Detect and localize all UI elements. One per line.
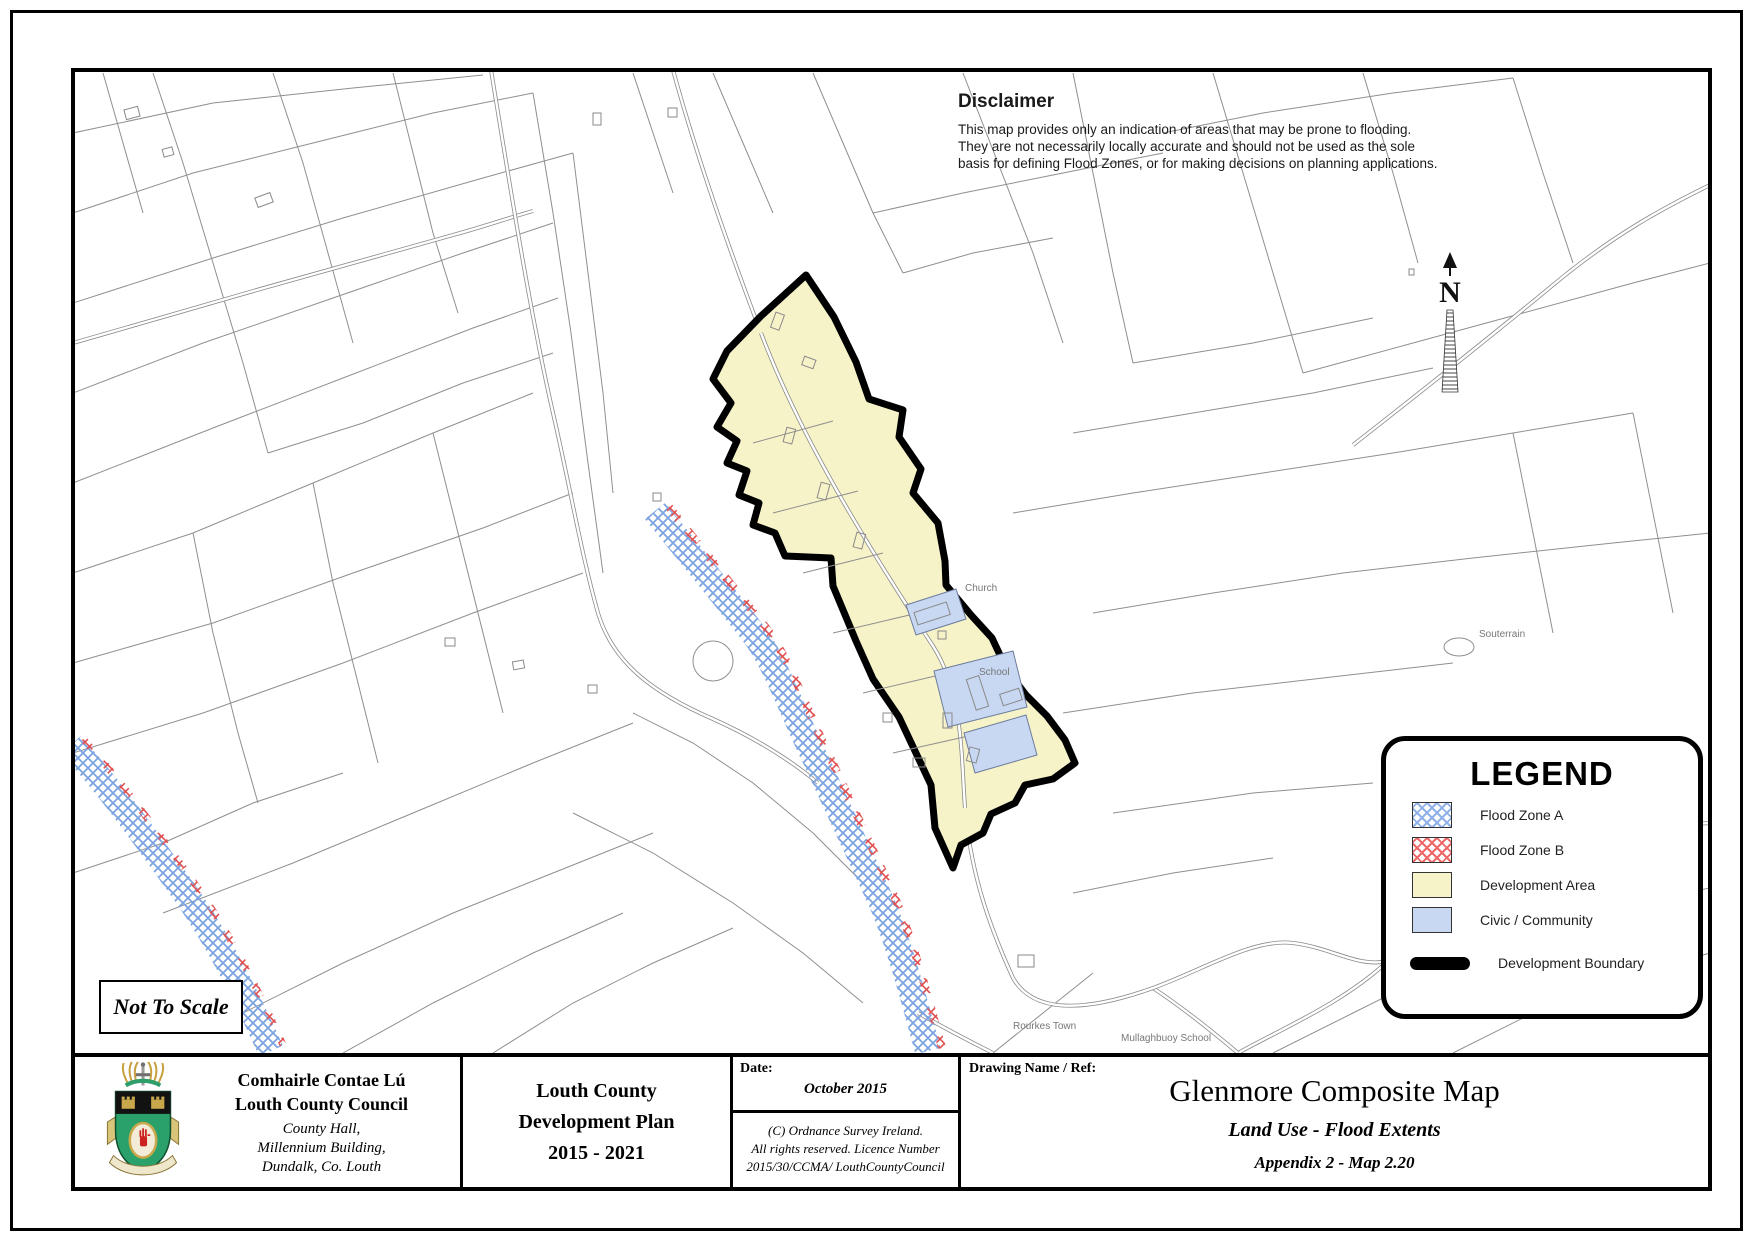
legend-item-label: Flood Zone A — [1480, 807, 1563, 823]
council-name-irish: Comhairle Contae Lú — [189, 1068, 454, 1092]
legend-item-label: Civic / Community — [1480, 912, 1593, 928]
council-cell: Comhairle Contae Lú Louth County Council… — [75, 1057, 460, 1187]
os-copyright-line: All rights reserved. Licence Number — [733, 1140, 958, 1158]
drawing-subtitle: Land Use - Flood Extents — [961, 1119, 1708, 1142]
map-area: Church School Souterrain Rourkes Town Mu… — [75, 72, 1708, 1053]
date-value: October 2015 — [733, 1081, 958, 1098]
souterrain-label: Souterrain — [1479, 629, 1525, 640]
mullaghbuoy-school-label: Mullaghbuoy School — [1121, 1033, 1211, 1044]
development-plan-cell: Louth County Development Plan 2015 - 202… — [460, 1057, 730, 1187]
north-arrowhead — [1443, 252, 1457, 268]
flood-zone-a-swatch — [1412, 802, 1452, 828]
plan-line: 2015 - 2021 — [518, 1138, 674, 1169]
title-block: Comhairle Contae Lú Louth County Council… — [75, 1053, 1708, 1187]
council-address-line: County Hall, — [189, 1120, 454, 1139]
church-label: Church — [965, 583, 997, 594]
os-copyright-line: 2015/30/CCMA/ LouthCountyCouncil — [733, 1158, 958, 1176]
drawing-name-cell: Drawing Name / Ref: Glenmore Composite M… — [958, 1057, 1708, 1187]
flood-zone-b-swatch — [1412, 837, 1452, 863]
legend-item-civic-community: Civic / Community — [1412, 907, 1698, 933]
civic-community-swatch — [1412, 907, 1452, 933]
map-frame: Church School Souterrain Rourkes Town Mu… — [71, 68, 1712, 1191]
disclaimer-line: They are not necessarily locally accurat… — [958, 138, 1558, 155]
legend-item-label: Development Boundary — [1498, 955, 1644, 971]
louth-county-council-crest — [97, 1061, 189, 1183]
development-boundary — [713, 275, 1075, 868]
legend-item-label: Flood Zone B — [1480, 842, 1564, 858]
drawing-appendix: Appendix 2 - Map 2.20 — [961, 1153, 1708, 1173]
souterrain-outline — [1444, 638, 1474, 656]
disclaimer-line: This map provides only an indication of … — [958, 121, 1558, 138]
council-address-line: Dundalk, Co. Louth — [189, 1158, 454, 1177]
disclaimer-block: Disclaimer This map provides only an ind… — [958, 91, 1558, 172]
legend-item-label: Development Area — [1480, 877, 1595, 893]
date-cell: Date: October 2015 (C) Ordnance Survey I… — [730, 1057, 958, 1187]
council-address-line: Millennium Building, — [189, 1139, 454, 1158]
council-name-english: Louth County Council — [189, 1092, 454, 1116]
north-spike — [1442, 310, 1458, 392]
drawing-title: Glenmore Composite Map — [961, 1073, 1708, 1109]
not-to-scale-label: Not To Scale — [113, 994, 228, 1020]
legend-item-development-boundary: Development Boundary — [1412, 955, 1698, 971]
north-arrow: N — [1427, 252, 1473, 412]
legend-item-flood-zone-b: Flood Zone B — [1412, 837, 1698, 863]
school-label: School — [979, 667, 1010, 678]
os-copyright-line: (C) Ordnance Survey Ireland. — [733, 1122, 958, 1140]
os-copyright: (C) Ordnance Survey Ireland. All rights … — [733, 1113, 958, 1176]
legend-title: LEGEND — [1386, 755, 1698, 793]
council-text: Comhairle Contae Lú Louth County Council… — [189, 1068, 460, 1177]
flood-zone-a — [75, 511, 928, 1051]
development-area-swatch — [1412, 872, 1452, 898]
legend-box: LEGEND Flood Zone A Flood Zone B Develop… — [1381, 736, 1703, 1019]
disclaimer-line: basis for defining Flood Zones, or for m… — [958, 155, 1558, 172]
date-subcell: Date: October 2015 — [733, 1057, 958, 1113]
legend-item-flood-zone-a: Flood Zone A — [1412, 802, 1698, 828]
date-label: Date: — [740, 1061, 773, 1077]
plan-line: Development Plan — [518, 1107, 674, 1138]
development-area — [713, 275, 1075, 868]
rourkes-town-label: Rourkes Town — [1013, 1021, 1076, 1032]
legend-item-development-area: Development Area — [1412, 872, 1698, 898]
disclaimer-title: Disclaimer — [958, 91, 1558, 113]
north-letter: N — [1439, 276, 1461, 309]
map-sheet-border: Church School Souterrain Rourkes Town Mu… — [10, 10, 1743, 1231]
buildings — [124, 106, 1414, 967]
pond-outline — [693, 641, 733, 681]
development-boundary-swatch — [1410, 957, 1470, 970]
not-to-scale-box: Not To Scale — [99, 980, 243, 1034]
plan-line: Louth County — [518, 1076, 674, 1107]
